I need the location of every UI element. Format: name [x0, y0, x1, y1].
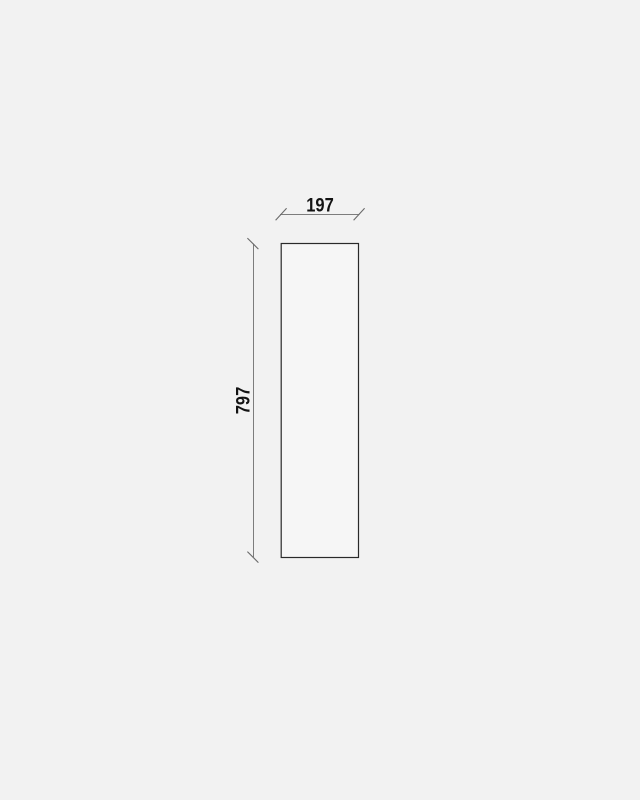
svg-text:797: 797	[234, 387, 255, 415]
svg-text:197: 197	[306, 196, 334, 217]
